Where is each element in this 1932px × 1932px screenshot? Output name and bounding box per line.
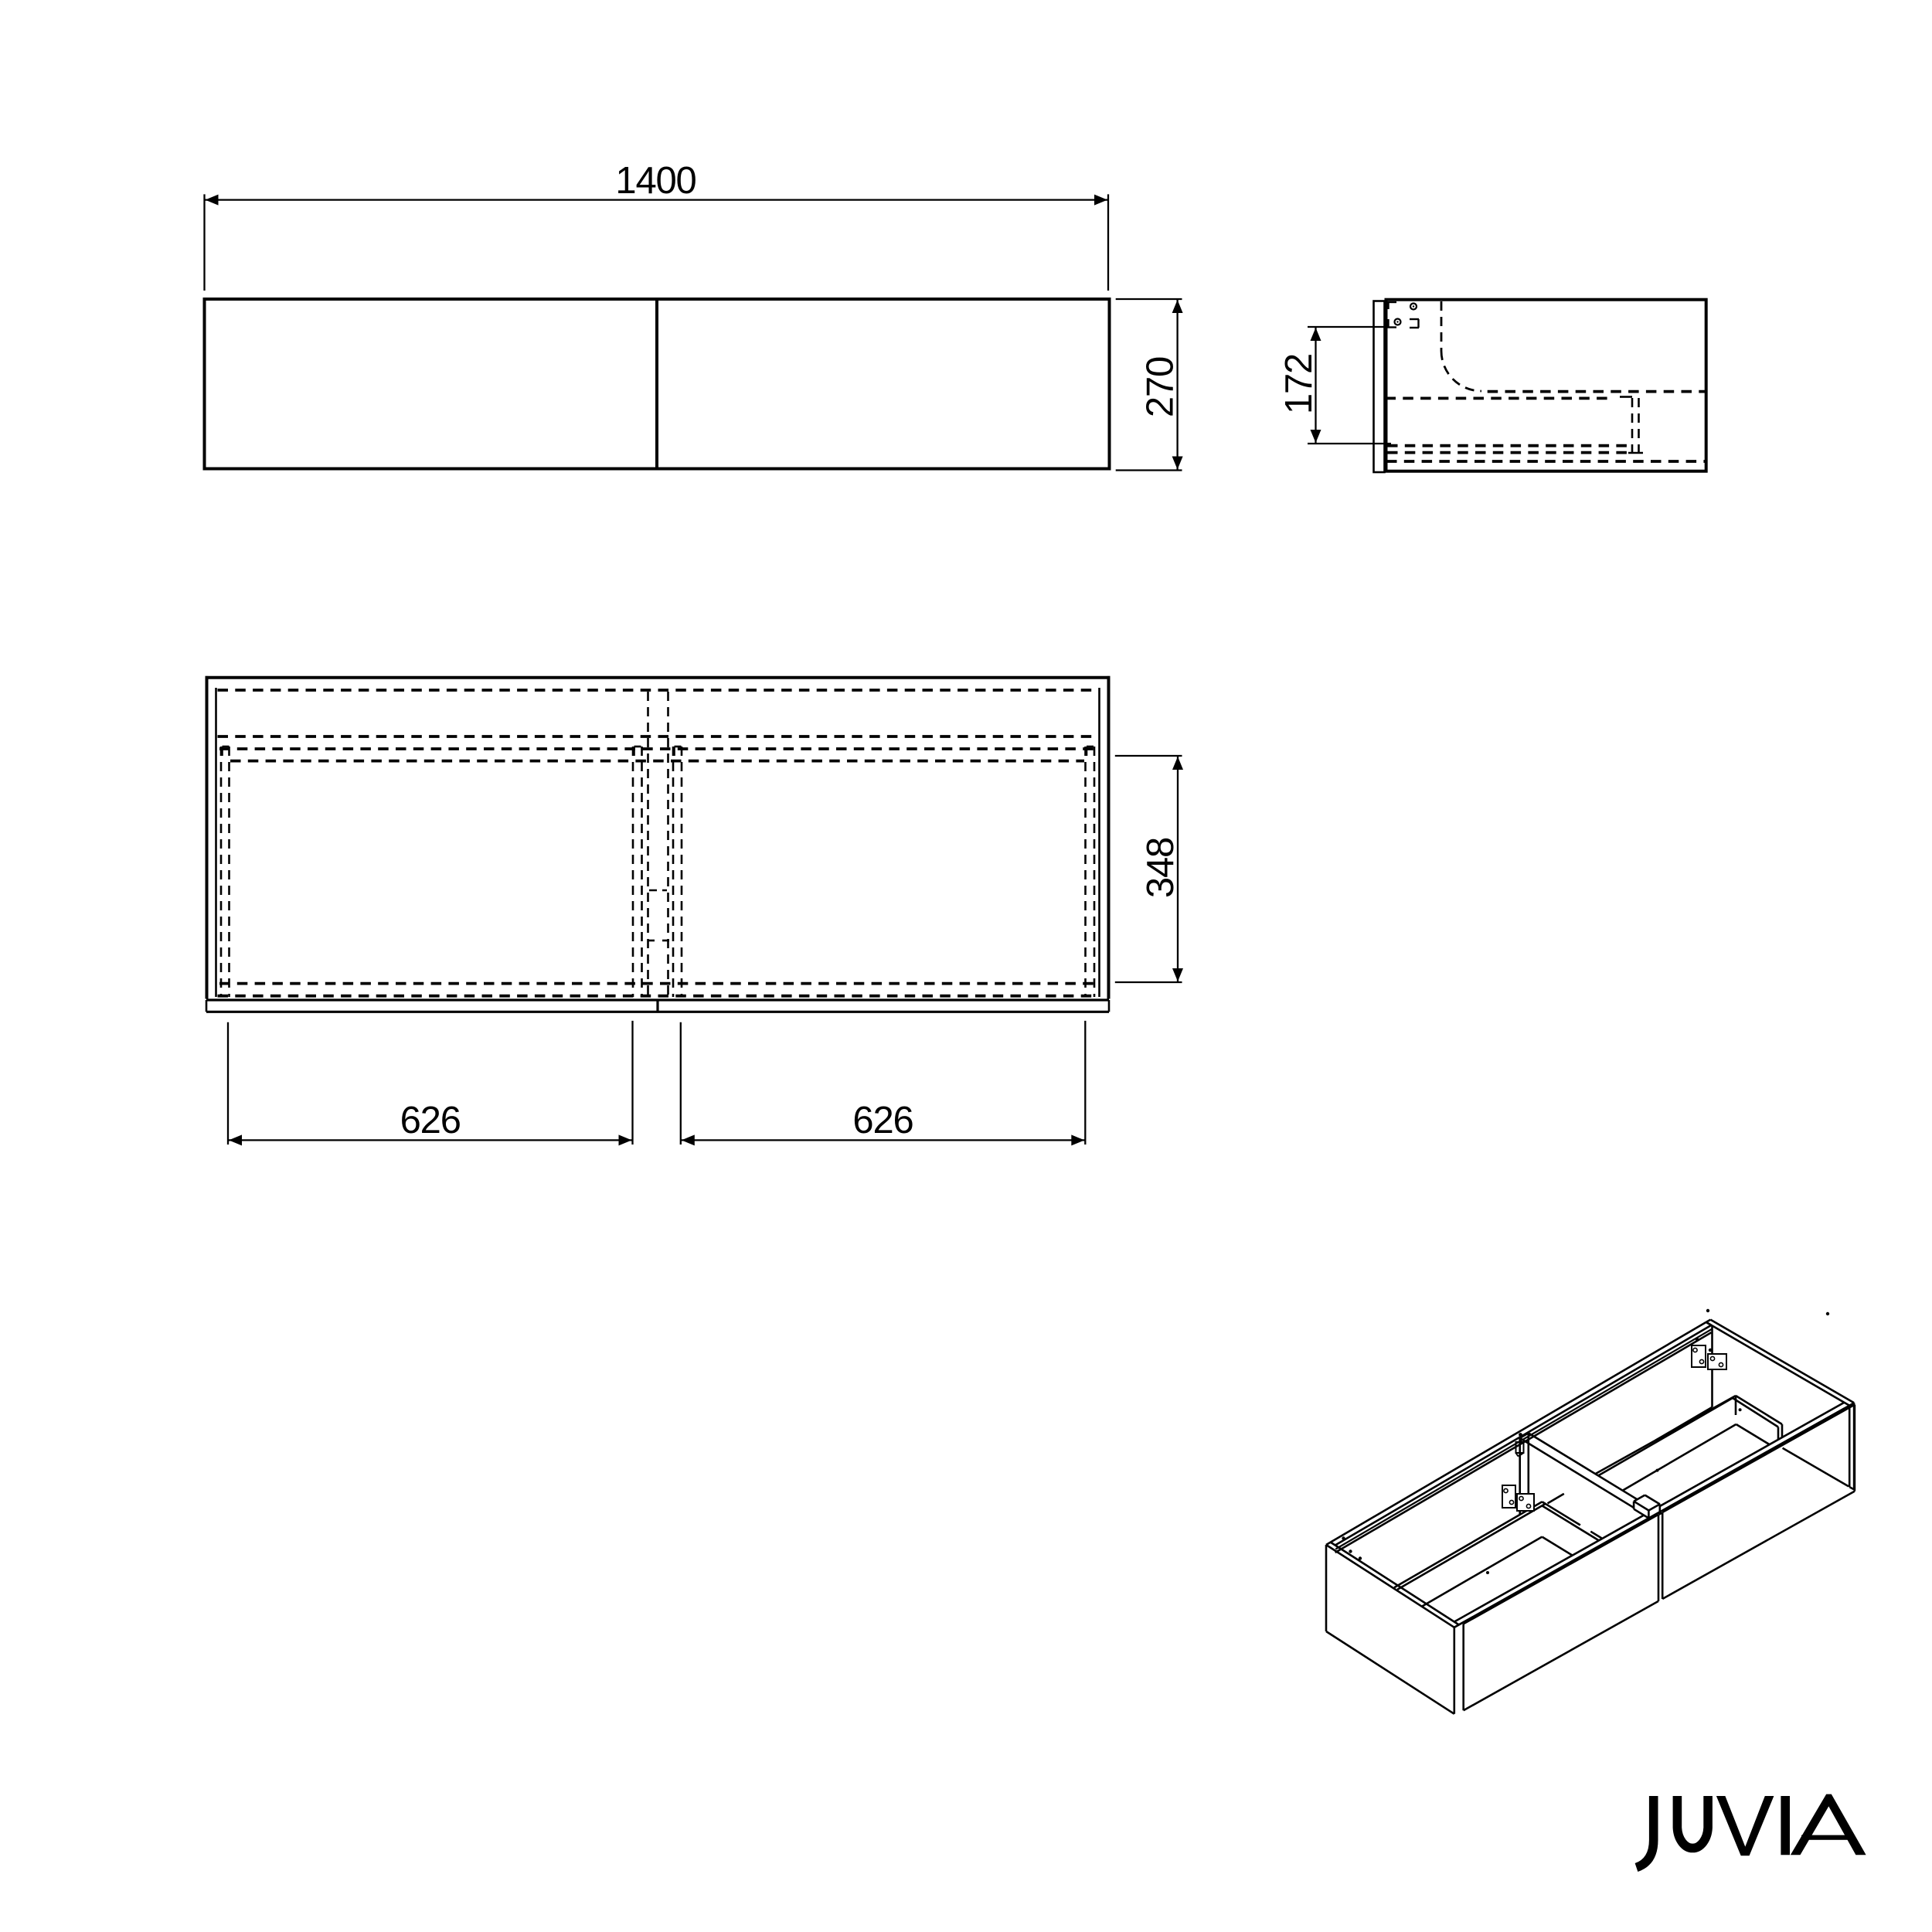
svg-text:172: 172	[1278, 354, 1320, 414]
svg-text:348: 348	[1140, 838, 1182, 898]
svg-text:626: 626	[400, 1100, 461, 1141]
svg-text:626: 626	[852, 1100, 913, 1141]
svg-text:1400: 1400	[615, 160, 696, 202]
svg-text:270: 270	[1140, 357, 1182, 417]
